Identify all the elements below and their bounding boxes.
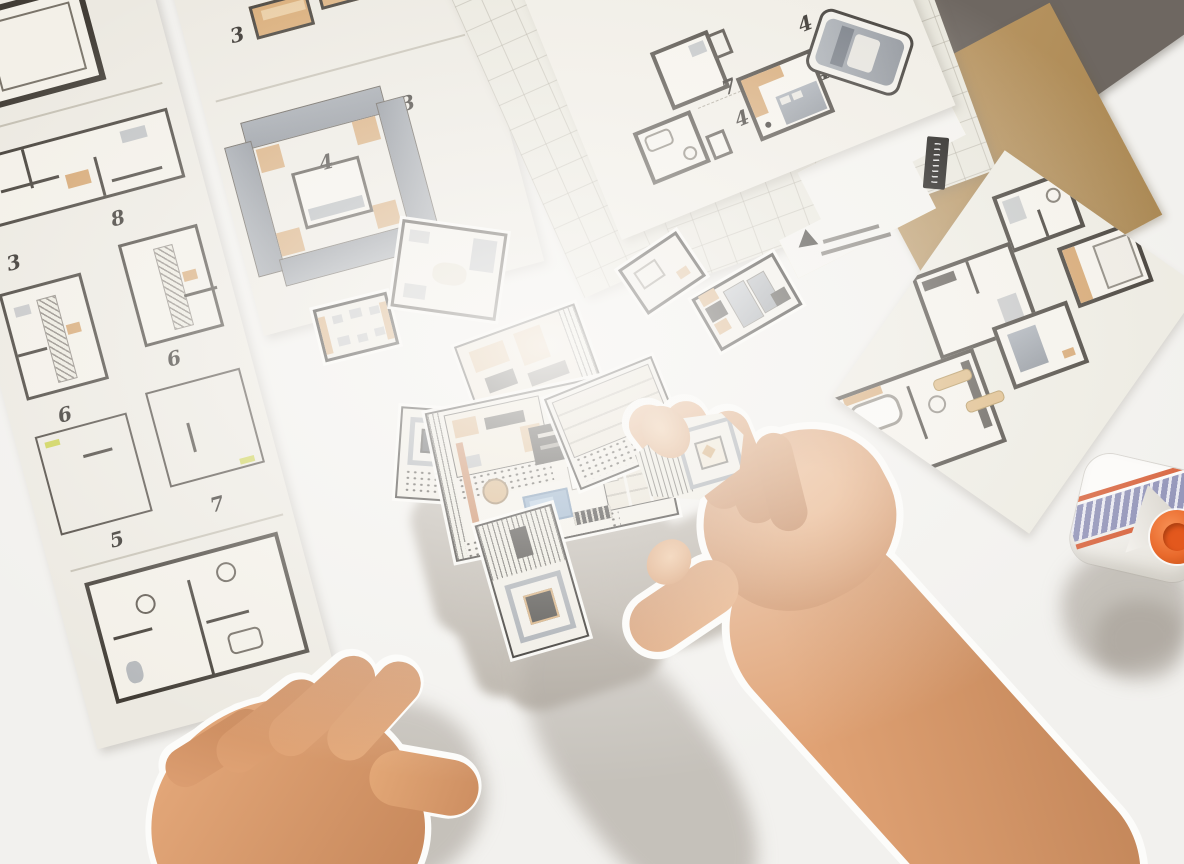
small-fixture-plan: [705, 129, 733, 161]
inner-room-bed: [308, 195, 365, 221]
plan-wall: [1037, 209, 1049, 236]
bed-piece: [312, 0, 383, 10]
plan-furniture-wood: [182, 269, 198, 282]
bed-symbol: [1007, 325, 1049, 373]
corner-deck: [352, 116, 381, 145]
void-slit: [540, 442, 562, 450]
mini-furniture: [409, 229, 430, 244]
sink-symbol: [1044, 186, 1063, 205]
mini-furniture: [374, 326, 386, 336]
step-label: 3: [228, 23, 247, 46]
bathroom-plan-small: [633, 110, 711, 185]
plan-wall: [184, 286, 218, 298]
stair-hatch: [36, 295, 78, 383]
corner-deck: [372, 199, 401, 228]
mini-furniture: [332, 314, 344, 324]
mini-furniture: [357, 333, 369, 343]
plan-wall: [187, 580, 216, 677]
fixture-outline: [633, 259, 666, 290]
stair-hatch: [153, 244, 194, 330]
plan-furniture-gray: [688, 40, 707, 57]
pillow-symbol: [791, 90, 803, 100]
shower-head-symbol: [214, 560, 238, 584]
plan-wall: [906, 386, 928, 440]
photo-scene: 8 3 6 6 7 5: [0, 0, 1184, 864]
bed-sheet-line: [261, 0, 306, 20]
wood-floor-band: [741, 65, 784, 92]
square-roof-inner: [0, 1, 87, 91]
plan-wall: [18, 347, 48, 358]
roof-deck: [513, 324, 551, 366]
unit-plan-b: [118, 224, 225, 348]
drain-symbol: [926, 393, 949, 416]
bed-symbol: [469, 238, 497, 273]
step-label: 3: [4, 251, 23, 274]
fixture: [1002, 196, 1027, 225]
plan-furniture-gray: [119, 125, 147, 143]
roof-deck: [469, 340, 510, 373]
pavilion-skylight-frame: [504, 570, 576, 644]
mini-furniture: [349, 307, 363, 319]
roof-skylight-dark: [527, 360, 569, 387]
plan-wall: [112, 166, 163, 182]
wardrobe-band: [922, 271, 957, 292]
step-label: 5: [108, 528, 127, 551]
step-label: 6: [55, 403, 74, 426]
roof-skylight-dark: [484, 368, 518, 393]
pillow-symbol: [779, 95, 791, 105]
tag-print-illegible: [931, 143, 940, 183]
floor-stain: [431, 261, 468, 288]
plan-wall: [206, 610, 249, 624]
outline-plan-a: [35, 412, 153, 535]
door-marker: [44, 439, 60, 449]
plan-wall: [965, 261, 979, 294]
step-label: 7: [208, 493, 227, 516]
sink-symbol: [681, 144, 699, 162]
mini-furniture: [337, 335, 351, 347]
plan-furniture-gray: [14, 304, 32, 318]
unit-plan-a: [0, 273, 109, 401]
toilet-symbol: [124, 659, 145, 684]
corner-deck: [256, 144, 285, 173]
tub-symbol: [226, 625, 265, 655]
roof-deck: [452, 416, 479, 439]
plan-furniture-wood: [1062, 347, 1076, 359]
step-label: 4: [795, 12, 815, 36]
shower-head-symbol: [133, 592, 157, 616]
plan-wall: [93, 157, 106, 196]
plan-furniture-wood: [66, 322, 82, 335]
mini-furniture: [403, 283, 427, 300]
wood-floor-band: [1062, 246, 1093, 303]
bed-symbol: [1092, 233, 1143, 289]
plan-wall: [113, 627, 152, 640]
skylight-core: [694, 435, 729, 470]
glue-shadow: [1095, 600, 1184, 680]
long-house-plan: [0, 108, 185, 233]
mini-furniture: [676, 265, 691, 279]
bed-piece: [248, 0, 315, 40]
plan-wall: [186, 423, 196, 453]
outline-plan-b: [145, 368, 265, 488]
warning-triangle-icon: [796, 227, 819, 247]
door-marker: [239, 455, 255, 465]
entry-grate: [573, 505, 613, 526]
plan-wall: [83, 447, 113, 457]
skylight-diamond: [702, 445, 716, 459]
skylight-core: [523, 588, 560, 625]
glue-cap-inner: [1163, 523, 1184, 551]
corner-deck: [276, 227, 305, 256]
black-label-tag: [923, 136, 949, 190]
square-roof-plan: [0, 0, 106, 110]
lamp-dot: [764, 121, 772, 129]
step-label: 6: [165, 347, 184, 370]
bed-symbol: [775, 81, 827, 125]
plan-furniture-wood: [65, 169, 92, 189]
section-divider: [216, 34, 466, 102]
step-label: 8: [108, 207, 127, 230]
piece-square-room: [390, 219, 507, 321]
mini-furniture: [369, 305, 381, 315]
tub-symbol: [643, 127, 675, 153]
